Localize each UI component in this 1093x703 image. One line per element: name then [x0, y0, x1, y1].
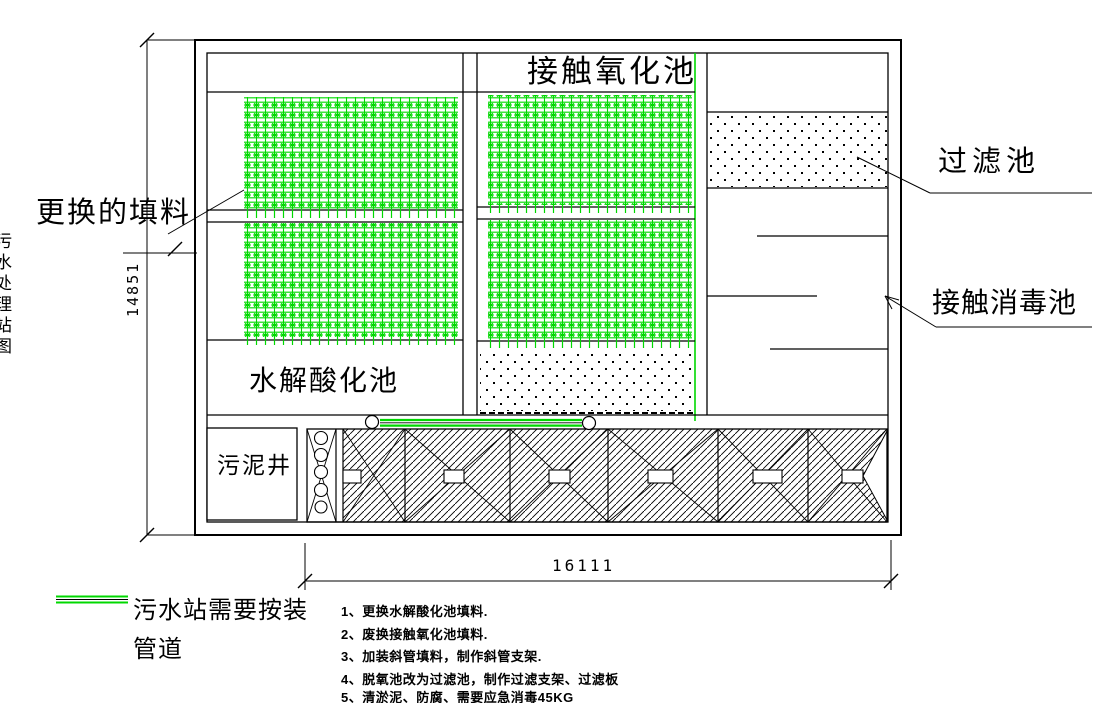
note-1: 1、更换水解酸化池填料.: [341, 601, 488, 620]
label-filter-pool: 过滤池: [938, 147, 1040, 177]
label-contact-disinfection-pool: 接触消毒池: [932, 288, 1077, 317]
aeration-holes: [315, 432, 328, 514]
sludge-channel: [307, 429, 887, 522]
label-sludge-well: 污泥井: [217, 453, 292, 477]
legend-text-line2: 管道: [133, 637, 183, 662]
pipe-to-install: [366, 416, 596, 430]
edge-clipped-vertical-text: 污水处理站图: [0, 232, 14, 358]
cad-drawing-canvas: 接触氧化池 更换的填料 过滤池 接触消毒池 水解酸化池 污泥井 14851 16…: [0, 0, 1093, 703]
label-replaced-media: 更换的填料: [36, 198, 191, 228]
note-3: 3、加装斜管填料，制作斜管支架.: [341, 646, 542, 665]
note-4: 4、脱氧池改为过滤池，制作过滤支架、过滤板: [341, 669, 619, 688]
note-5: 5、清淤泥、防腐、需要应急消毒45KG: [341, 687, 574, 703]
legend-text-line1: 污水站需要按装: [133, 598, 308, 623]
label-contact-oxidation-pool: 接触氧化池: [527, 56, 697, 89]
dimension-width-text: 16111: [552, 556, 615, 575]
label-hydrolysis-acidification-pool: 水解酸化池: [249, 366, 399, 395]
note-2: 2、废换接触氧化池填料.: [341, 624, 488, 643]
dimension-height-text: 14851: [124, 262, 142, 317]
legend-pipe-symbol: [56, 597, 128, 603]
